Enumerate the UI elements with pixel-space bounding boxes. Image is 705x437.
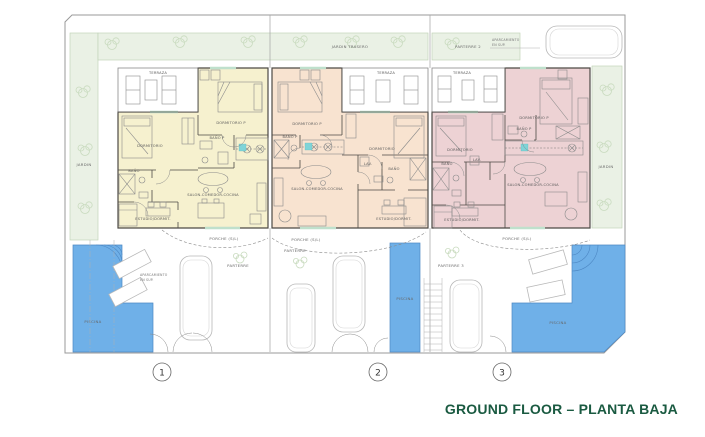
unit-numbers: 1 2 3 (153, 363, 511, 381)
label-bano-p-3: BAÑO P (517, 126, 533, 131)
label-bano-p-2: BAÑO P (283, 134, 299, 139)
label-parterre-1: PARTERRE (227, 263, 249, 268)
floor-plan-canvas: JARDIN JARDIN TRASERO PARTERRE 2 JARDIN … (0, 0, 705, 437)
label-dormitorio-p-2: DORMITORIO P (292, 122, 322, 126)
label-terraza-1: TERRAZA (148, 71, 167, 75)
unit-3-number: 3 (499, 369, 505, 379)
label-estudio-2: ESTUDIO/DORMIT. (376, 217, 411, 221)
label-dormitorio-p-1: DORMITORIO P (216, 121, 246, 125)
label-aparcamiento-left-1: APARCAMIENTO (140, 273, 168, 277)
label-parterre-2: PARTERRE 2 (455, 44, 481, 49)
label-jardin-left: JARDIN (76, 162, 92, 167)
label-estudio-3: ESTUDIO/DORMIT. (444, 218, 479, 222)
label-lav-2: LAV. (364, 162, 372, 166)
unit-2-number: 2 (375, 369, 381, 379)
label-bano-3: BAÑO (441, 161, 452, 166)
label-terraza-3: TERRAZA (452, 71, 471, 75)
label-piscina-left: PISCINA (84, 319, 101, 324)
garden-left-strip (70, 33, 98, 240)
label-piscina-right: PISCINA (549, 320, 566, 325)
label-salon-2: SALON-COMEDOR-COCINA (291, 187, 343, 191)
label-jardin-right: JARDIN (598, 164, 614, 169)
label-piscina-middle: PISCINA (396, 296, 413, 301)
label-salon-3: SALON-COMEDOR-COCINA (507, 183, 559, 187)
label-porche-3: PORCHE (S/L) (502, 236, 531, 241)
label-jardin-trasero: JARDIN TRASERO (331, 44, 368, 49)
label-dormitorio-3: DORMITORIO (447, 148, 473, 152)
label-aparcamiento-top-2: EN SUP. (492, 43, 506, 47)
unit-2-plan: TERRAZA DORMITORIO P BAÑO P DORMITORIO L… (272, 68, 428, 228)
label-aparcamiento-left-2: EN SUP. (140, 278, 154, 282)
label-parterre-mid: PARTERRE (284, 248, 306, 253)
floor-plan-page: JARDIN JARDIN TRASERO PARTERRE 2 JARDIN … (0, 0, 705, 437)
label-aparcamiento-top-1: APARCAMIENTO (492, 38, 520, 42)
label-bano-1: BAÑO (128, 168, 139, 173)
label-dormitorio-2: DORMITORIO (369, 147, 395, 151)
unit-1-number: 1 (159, 369, 165, 379)
label-dormitorio-p-3: DORMITORIO P (519, 116, 549, 120)
unit-3-plan: TERRAZA DORMITORIO P BAÑO P DORMITORIO B… (432, 68, 590, 228)
car-outline (546, 26, 622, 58)
label-salon-1: SALON-COMEDOR-COCINA (187, 193, 239, 197)
label-dormitorio-1: DORMITORIO (137, 144, 163, 148)
label-estudio-1: ESTUDIO/DORMIT. (135, 217, 170, 221)
unit-1-plan: TERRAZA DORMITORIO P BAÑO P DORMITORIO B… (118, 68, 268, 228)
label-porche-1: PORCHE (S/L) (209, 236, 238, 241)
label-bano-2: BAÑO (388, 166, 399, 171)
label-parterre-3: PARTERRE 3 (438, 263, 464, 268)
garden-rear-band (98, 33, 428, 60)
page-title: GROUND FLOOR – PLANTA BAJA (445, 401, 678, 417)
label-bano-p-1: BAÑO P (210, 135, 226, 140)
label-porche-2: PORCHE (S/L) (291, 237, 320, 242)
label-terraza-2: TERRAZA (376, 71, 395, 75)
label-lav-3: LAV. (473, 158, 481, 162)
